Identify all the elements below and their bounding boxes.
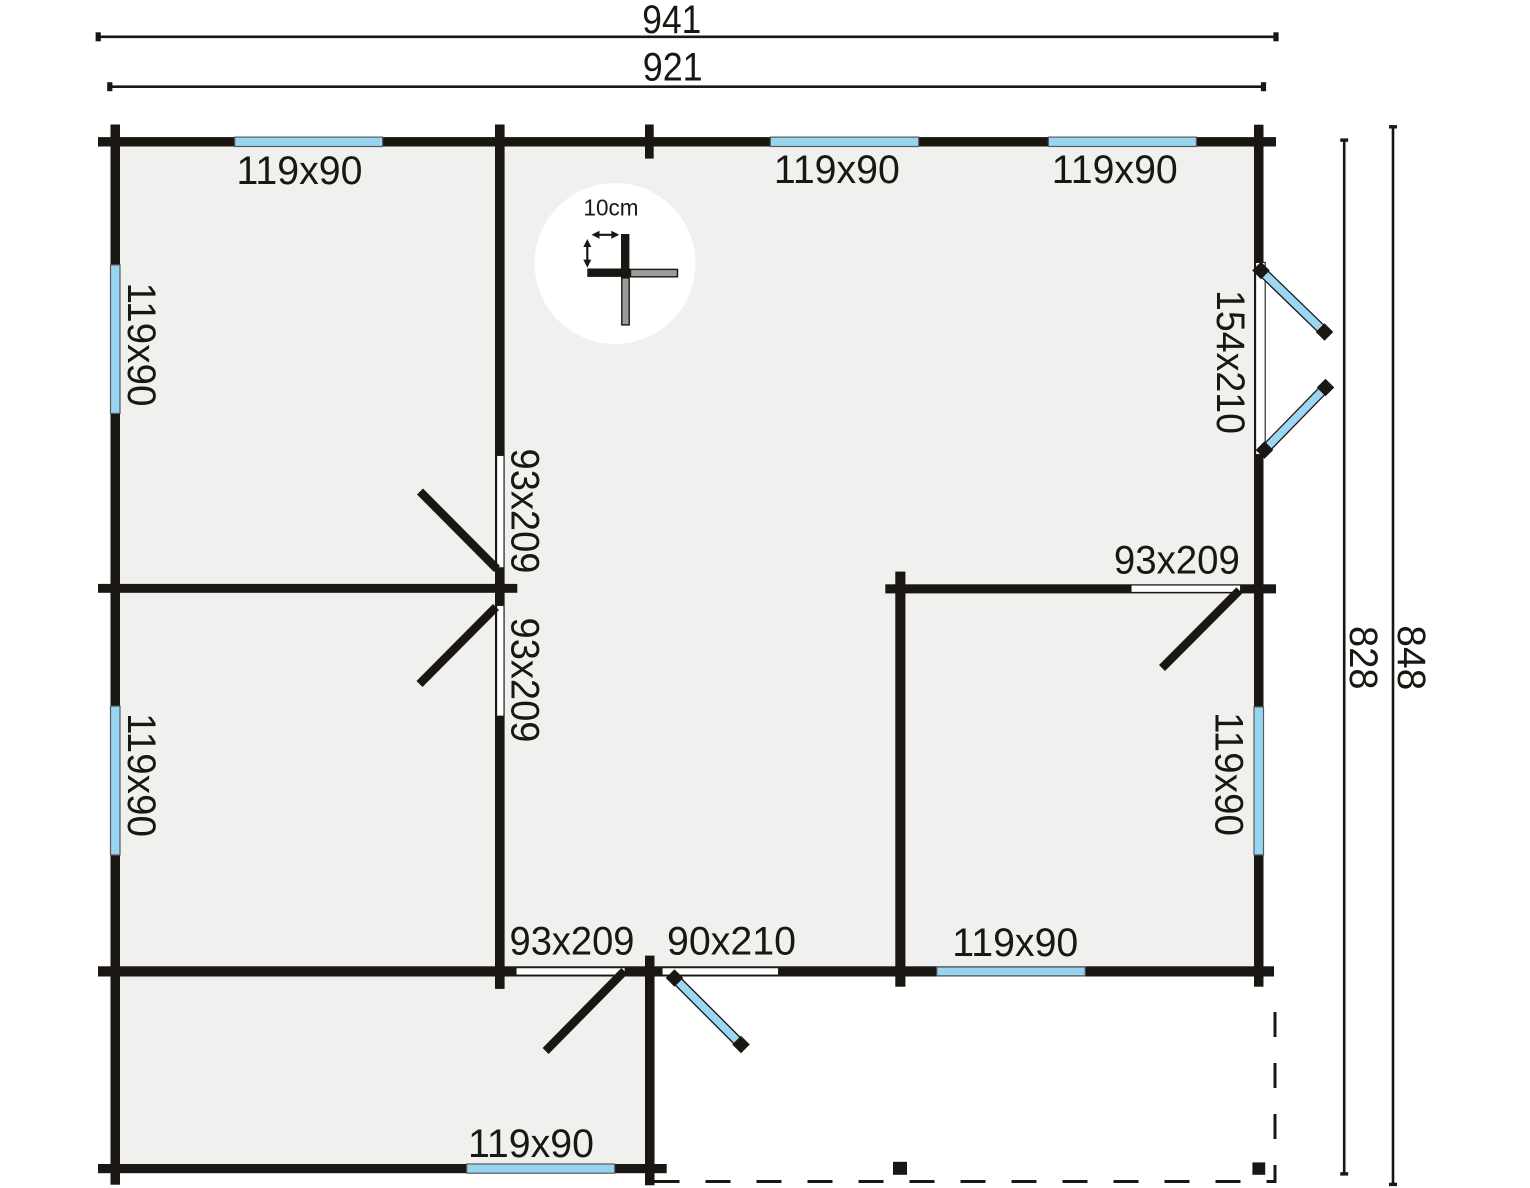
svg-text:119x90: 119x90 bbox=[774, 148, 900, 192]
svg-text:119x90: 119x90 bbox=[1052, 148, 1178, 192]
svg-text:154x210: 154x210 bbox=[1208, 290, 1252, 434]
svg-text:921: 921 bbox=[643, 46, 703, 90]
svg-text:848: 848 bbox=[1389, 625, 1433, 690]
svg-text:93x209: 93x209 bbox=[503, 449, 547, 574]
svg-text:93x209: 93x209 bbox=[1114, 539, 1240, 583]
svg-text:119x90: 119x90 bbox=[119, 713, 163, 837]
svg-text:119x90: 119x90 bbox=[119, 283, 163, 407]
svg-text:119x90: 119x90 bbox=[952, 921, 1078, 965]
svg-text:10cm: 10cm bbox=[584, 194, 639, 220]
svg-text:93x209: 93x209 bbox=[503, 618, 547, 743]
svg-text:93x209: 93x209 bbox=[510, 920, 635, 964]
svg-text:119x90: 119x90 bbox=[468, 1122, 594, 1166]
svg-text:119x90: 119x90 bbox=[1207, 712, 1251, 836]
svg-text:90x210: 90x210 bbox=[667, 920, 796, 964]
svg-text:119x90: 119x90 bbox=[237, 149, 363, 193]
svg-text:941: 941 bbox=[642, 0, 701, 42]
svg-text:828: 828 bbox=[1341, 626, 1385, 690]
